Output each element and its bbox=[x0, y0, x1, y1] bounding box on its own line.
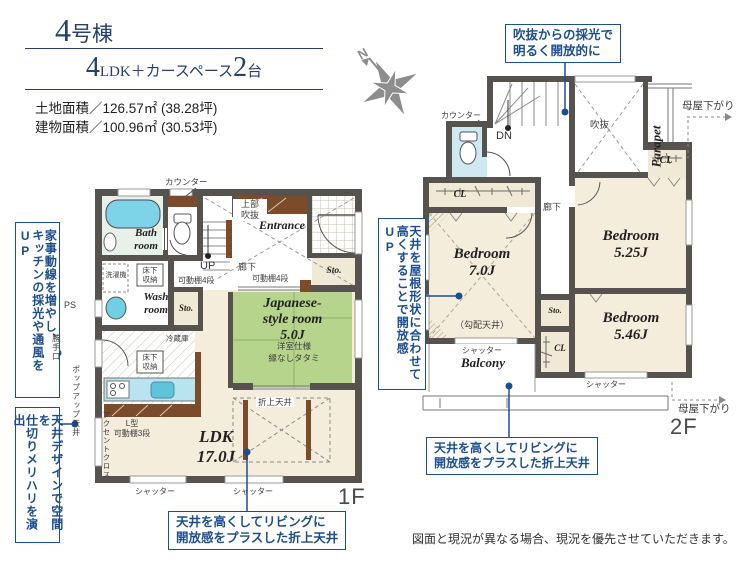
layout-num2: 2 bbox=[233, 52, 247, 83]
compass-n-label: N bbox=[355, 45, 371, 63]
label-counter-2f: カウンター bbox=[441, 111, 481, 121]
room-ldk: LDK 17.0J bbox=[185, 427, 247, 466]
label-counter-1f: カウンター bbox=[165, 177, 208, 187]
room-sto-b: Sto. bbox=[318, 266, 350, 277]
callout-housework-col2: キッチンの採光や通風をUP bbox=[19, 229, 44, 391]
room-bed525: Bedroom 5.25J bbox=[581, 228, 681, 263]
label-up: UP bbox=[200, 260, 215, 272]
label-shutter-a-1f: シャッター bbox=[135, 487, 175, 497]
label-dn: DN bbox=[496, 130, 512, 142]
layout-num1: 4 bbox=[86, 52, 100, 83]
label-shutter-b-1f: シャッター bbox=[233, 487, 273, 497]
label-shelf4-a: 可動棚4段 bbox=[176, 276, 216, 286]
label-hallway-2f: 廊下 bbox=[543, 202, 561, 213]
label-accent-cloth: アクセントクロス bbox=[102, 411, 111, 479]
label-jroom-spec1: 洋室仕様 bbox=[264, 341, 324, 351]
callout-roof-col1: 天井を屋根形状に合わせて bbox=[408, 225, 421, 383]
label-parapet: Parapet bbox=[650, 116, 665, 176]
room-bath: Bath room bbox=[116, 227, 176, 252]
rule-top bbox=[25, 48, 323, 49]
callout-ceiling-design-col2: 仕切りメリハリを演出 bbox=[12, 414, 37, 536]
label-coffered: 折上天井 bbox=[256, 397, 294, 407]
label-jroom-spec2: 縁なしタタミ bbox=[258, 353, 330, 363]
room-balcony: Balcony bbox=[447, 356, 519, 371]
floorplan-page: 4号棟 4LDK＋カースペース2台 土地面積／126.57㎡ (38.28坪) … bbox=[0, 0, 749, 565]
title-suffix: 号棟 bbox=[71, 22, 113, 46]
room-bed7: Bedroom 7.0J bbox=[437, 246, 527, 281]
room-entrance: Entrance bbox=[252, 219, 312, 233]
layout-line: 4LDK＋カースペース2台 bbox=[25, 52, 323, 84]
label-cl-topright: CL bbox=[651, 155, 681, 167]
callout-void-light: 吹抜からの採光で 明るく開放的に bbox=[505, 24, 621, 63]
title-number: 4 bbox=[55, 12, 71, 48]
callout-coffered-1f: 天井を高くしてリビングに 開放感をプラスした折上天井 bbox=[168, 511, 346, 550]
label-popup-ceiling: ポップアップ天井 bbox=[71, 365, 81, 437]
label-hallway-1f: 廊下 bbox=[238, 262, 256, 273]
floor-label-1f: 1F bbox=[338, 484, 366, 510]
label-void-2f: 吹抜 bbox=[590, 120, 609, 131]
label-underfloor-a: 床下 収納 bbox=[138, 266, 162, 284]
layout-tail: 台 bbox=[247, 64, 262, 80]
label-shelf4-b: 可動棚4段 bbox=[250, 274, 290, 284]
callout-roof-shape: 天井を屋根形状に合わせて 高くすることで開放感UP bbox=[378, 218, 426, 390]
room-japanese: Japanese- style room 5.0J bbox=[240, 296, 345, 344]
label-ps: PS bbox=[64, 300, 76, 311]
label-sloped-ceiling: （勾配天井） bbox=[444, 320, 520, 331]
land-area: 土地面積／126.57㎡ (38.28坪) bbox=[35, 97, 217, 117]
label-washer: 洗濯機 bbox=[103, 272, 129, 280]
label-cl-mid: CL bbox=[549, 343, 571, 353]
callout-housework: 家事動線を増やし、 キッチンの採光や通風をUP bbox=[15, 222, 60, 398]
floor-label-2f: 2F bbox=[670, 414, 698, 440]
callout-ceiling-design-col1: 天井デザインで空間を bbox=[38, 414, 63, 536]
label-backdoor: 勝手口 bbox=[51, 334, 61, 361]
room-bed546: Bedroom 5.46J bbox=[581, 310, 681, 345]
label-cl-left: CL bbox=[445, 189, 475, 201]
callout-roof-col2: 高くすることで開放感UP bbox=[383, 225, 408, 383]
label-shutter-b-2f: シャッター bbox=[586, 380, 626, 390]
callout-coffered-2f: 天井を高くしてリビングに 開放感をプラスした折上天井 bbox=[426, 437, 598, 475]
rule-bottom bbox=[25, 89, 323, 90]
building-area: 建物面積／100.96㎡ (30.53坪) bbox=[35, 116, 217, 136]
layout-mid: LDK＋カースペース bbox=[100, 64, 233, 80]
room-sto-2f: Sto. bbox=[541, 306, 569, 316]
room-sto-a: Sto. bbox=[172, 303, 200, 313]
callout-housework-col1: 家事動線を増やし、 bbox=[44, 229, 57, 391]
disclaimer: 図面と現況が異なる場合、現況を優先させていただきます。 bbox=[412, 530, 735, 547]
callout-ceiling-design: 天井デザインで空間を 仕切りメリハリを演出 bbox=[15, 407, 60, 543]
label-moya-top: 母屋下がり bbox=[682, 100, 735, 113]
label-fridge: 冷蔵庫 bbox=[166, 334, 189, 343]
label-l-shelf: L型 可動棚3段 bbox=[104, 419, 160, 438]
page-title: 4号棟 bbox=[55, 12, 113, 49]
label-shutter-a-2f: シャッター bbox=[462, 346, 502, 356]
label-underfloor-b: 床下 収納 bbox=[138, 353, 162, 371]
